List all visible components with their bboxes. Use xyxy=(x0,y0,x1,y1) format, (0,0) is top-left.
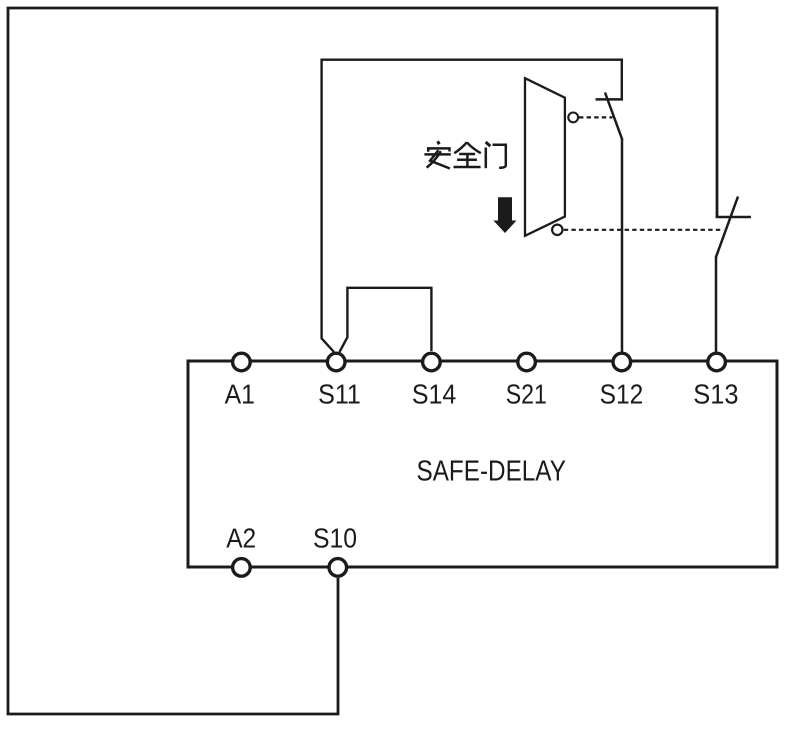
svg-text:S21: S21 xyxy=(506,379,547,410)
svg-text:S13: S13 xyxy=(693,379,738,410)
svg-text:S11: S11 xyxy=(318,379,361,410)
svg-text:S12: S12 xyxy=(600,379,644,410)
svg-text:SAFE-DELAY: SAFE-DELAY xyxy=(417,456,566,488)
svg-text:A2: A2 xyxy=(226,522,256,553)
svg-text:A1: A1 xyxy=(225,379,255,410)
svg-text:S10: S10 xyxy=(313,522,357,553)
svg-text:S14: S14 xyxy=(412,379,456,410)
